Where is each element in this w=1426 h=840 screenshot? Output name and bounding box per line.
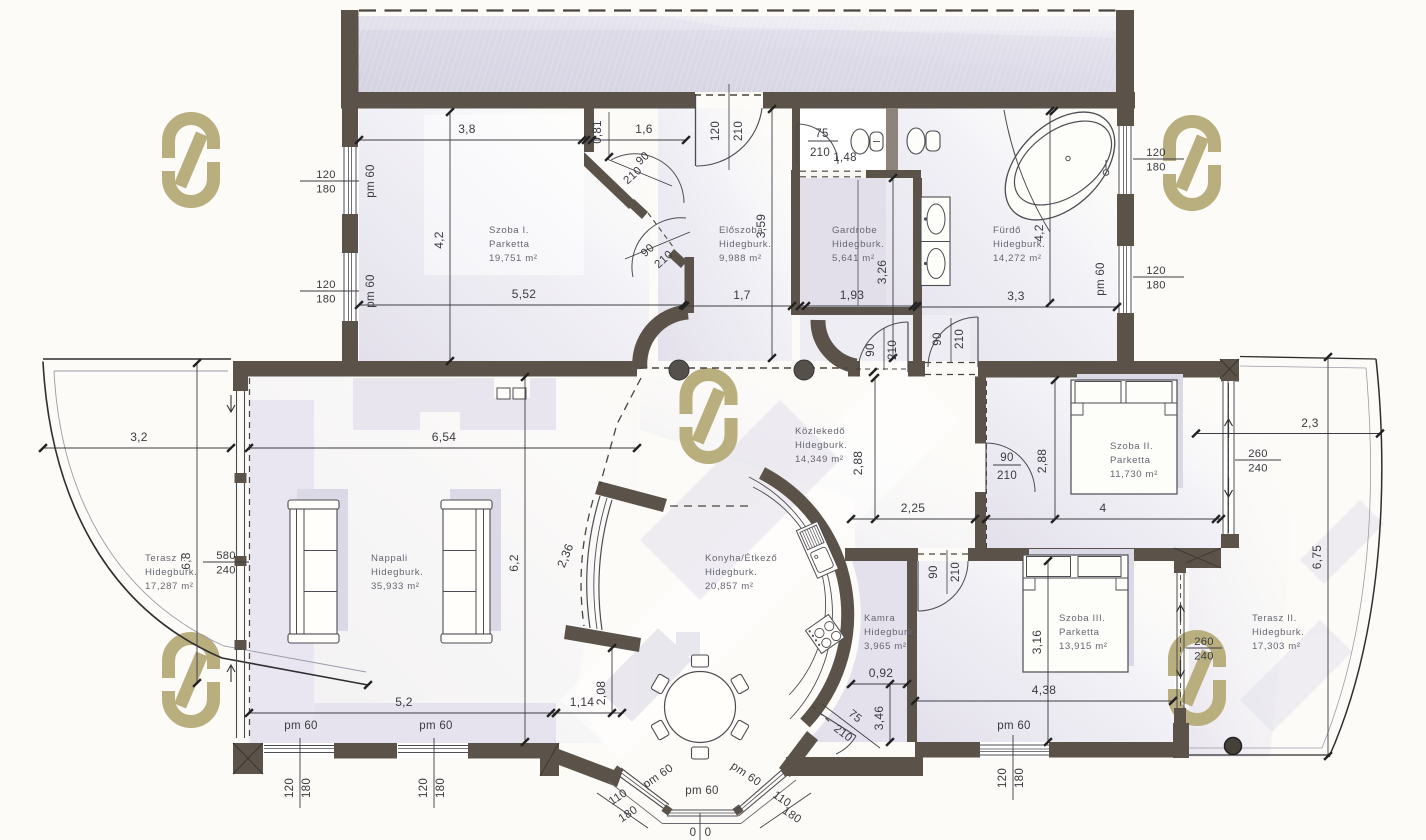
- svg-text:6,2: 6,2: [507, 554, 521, 572]
- svg-text:1,7: 1,7: [733, 288, 751, 302]
- svg-text:pm 60: pm 60: [1095, 262, 1107, 295]
- svg-text:Parketta: Parketta: [1059, 627, 1100, 638]
- svg-text:13,915 m²: 13,915 m²: [1059, 641, 1108, 652]
- svg-text:3,965 m²: 3,965 m²: [864, 641, 907, 652]
- svg-text:1,14: 1,14: [570, 695, 595, 709]
- svg-text:260: 260: [1248, 448, 1268, 460]
- svg-text:1,48: 1,48: [833, 152, 857, 164]
- svg-text:Hidegburk.: Hidegburk.: [832, 239, 884, 250]
- svg-text:Előszoba: Előszoba: [719, 225, 763, 236]
- svg-text:Hidegburk.: Hidegburk.: [371, 567, 423, 578]
- svg-text:180: 180: [435, 778, 447, 798]
- svg-text:210: 210: [997, 470, 1017, 482]
- svg-text:0,92: 0,92: [869, 666, 894, 680]
- svg-text:3,26: 3,26: [875, 260, 889, 285]
- svg-text:5,641 m²: 5,641 m²: [832, 253, 875, 264]
- svg-text:Nappali: Nappali: [371, 553, 408, 564]
- svg-text:Hidegburk.: Hidegburk.: [705, 567, 757, 578]
- svg-text:180: 180: [1146, 280, 1166, 292]
- svg-text:2,08: 2,08: [594, 681, 608, 706]
- svg-text:Szoba III.: Szoba III.: [1059, 613, 1106, 624]
- svg-text:Parketta: Parketta: [1110, 455, 1151, 466]
- svg-text:90: 90: [928, 565, 940, 578]
- svg-text:6,75: 6,75: [1310, 545, 1324, 570]
- svg-text:180: 180: [301, 778, 313, 798]
- svg-text:5,2: 5,2: [395, 695, 413, 709]
- svg-text:14,272 m²: 14,272 m²: [993, 253, 1042, 264]
- svg-text:Hidegburk.: Hidegburk.: [993, 239, 1045, 250]
- svg-text:3,46: 3,46: [872, 706, 886, 731]
- svg-text:Szoba II.: Szoba II.: [1110, 441, 1153, 452]
- svg-text:210: 210: [887, 340, 899, 360]
- svg-text:90: 90: [865, 343, 877, 356]
- svg-text:20,857 m²: 20,857 m²: [705, 581, 754, 592]
- svg-text:2,25: 2,25: [901, 501, 926, 515]
- svg-text:Konyha/Étkező: Konyha/Étkező: [705, 553, 777, 564]
- svg-text:3,2: 3,2: [130, 430, 148, 444]
- svg-text:19,751 m²: 19,751 m²: [489, 253, 538, 264]
- svg-text:35,933 m²: 35,933 m²: [371, 581, 420, 592]
- svg-text:90: 90: [1000, 452, 1013, 464]
- svg-text:120: 120: [316, 279, 336, 291]
- svg-text:120: 120: [997, 768, 1009, 788]
- svg-text:1,6: 1,6: [635, 122, 653, 136]
- svg-text:4,38: 4,38: [1032, 683, 1057, 697]
- svg-text:4: 4: [1100, 501, 1107, 515]
- svg-text:1,93: 1,93: [840, 288, 865, 302]
- svg-text:180: 180: [1146, 162, 1166, 174]
- svg-text:0: 0: [705, 827, 712, 839]
- svg-text:Hidegburk.: Hidegburk.: [864, 627, 916, 638]
- svg-text:Fürdő: Fürdő: [993, 225, 1021, 236]
- svg-text:5,52: 5,52: [512, 287, 537, 301]
- svg-text:580: 580: [216, 550, 236, 562]
- svg-text:9,988 m²: 9,988 m²: [719, 253, 762, 264]
- svg-text:120: 120: [1146, 265, 1166, 277]
- svg-text:3,8: 3,8: [458, 122, 476, 136]
- svg-text:3,3: 3,3: [1007, 289, 1025, 303]
- svg-text:pm 60: pm 60: [685, 785, 718, 797]
- svg-text:2,88: 2,88: [851, 451, 865, 476]
- svg-text:240: 240: [1248, 463, 1268, 475]
- svg-text:pm 60: pm 60: [997, 720, 1030, 732]
- svg-text:240: 240: [216, 565, 236, 577]
- svg-text:Közlekedő: Közlekedő: [795, 426, 845, 437]
- svg-text:180: 180: [316, 184, 336, 196]
- svg-text:0: 0: [690, 827, 697, 839]
- svg-text:210: 210: [733, 121, 745, 141]
- svg-text:75: 75: [815, 128, 828, 140]
- svg-text:Gardrobe: Gardrobe: [832, 225, 877, 236]
- svg-text:17,287 m²: 17,287 m²: [145, 581, 194, 592]
- svg-text:11,730 m²: 11,730 m²: [1110, 469, 1158, 480]
- svg-text:120: 120: [284, 778, 296, 798]
- svg-text:120: 120: [710, 121, 722, 141]
- svg-text:3,16: 3,16: [1030, 630, 1044, 655]
- svg-text:pm 60: pm 60: [365, 164, 377, 197]
- svg-text:14,349 m²: 14,349 m²: [795, 454, 844, 465]
- svg-text:Hidegburk.: Hidegburk.: [719, 239, 771, 250]
- svg-text:120: 120: [418, 778, 430, 798]
- svg-text:260: 260: [1194, 636, 1214, 648]
- svg-text:210: 210: [810, 147, 830, 159]
- svg-text:Hidegburk.: Hidegburk.: [795, 440, 847, 451]
- svg-text:90: 90: [932, 332, 944, 345]
- svg-text:Parketta: Parketta: [489, 239, 530, 250]
- svg-text:Terasz II.: Terasz II.: [1252, 613, 1297, 624]
- svg-text:6,54: 6,54: [432, 430, 457, 444]
- svg-text:180: 180: [1014, 768, 1026, 788]
- svg-text:120: 120: [1146, 147, 1166, 159]
- svg-text:180: 180: [316, 294, 336, 306]
- svg-text:2,3: 2,3: [1301, 416, 1319, 430]
- svg-text:pm 60: pm 60: [365, 274, 377, 307]
- svg-text:Hidegburk.: Hidegburk.: [1252, 627, 1304, 638]
- svg-text:Szoba I.: Szoba I.: [489, 225, 529, 236]
- svg-text:pm 60: pm 60: [284, 720, 317, 732]
- svg-text:17,303 m²: 17,303 m²: [1252, 641, 1301, 652]
- svg-text:210: 210: [954, 329, 966, 349]
- svg-text:2,88: 2,88: [1035, 449, 1049, 474]
- svg-text:6,8: 6,8: [179, 552, 193, 570]
- svg-text:pm 60: pm 60: [419, 720, 452, 732]
- svg-text:240: 240: [1194, 651, 1214, 663]
- svg-text:210: 210: [950, 562, 962, 582]
- svg-text:Kamra: Kamra: [864, 613, 895, 624]
- svg-text:4,2: 4,2: [432, 231, 446, 249]
- svg-text:120: 120: [316, 169, 336, 181]
